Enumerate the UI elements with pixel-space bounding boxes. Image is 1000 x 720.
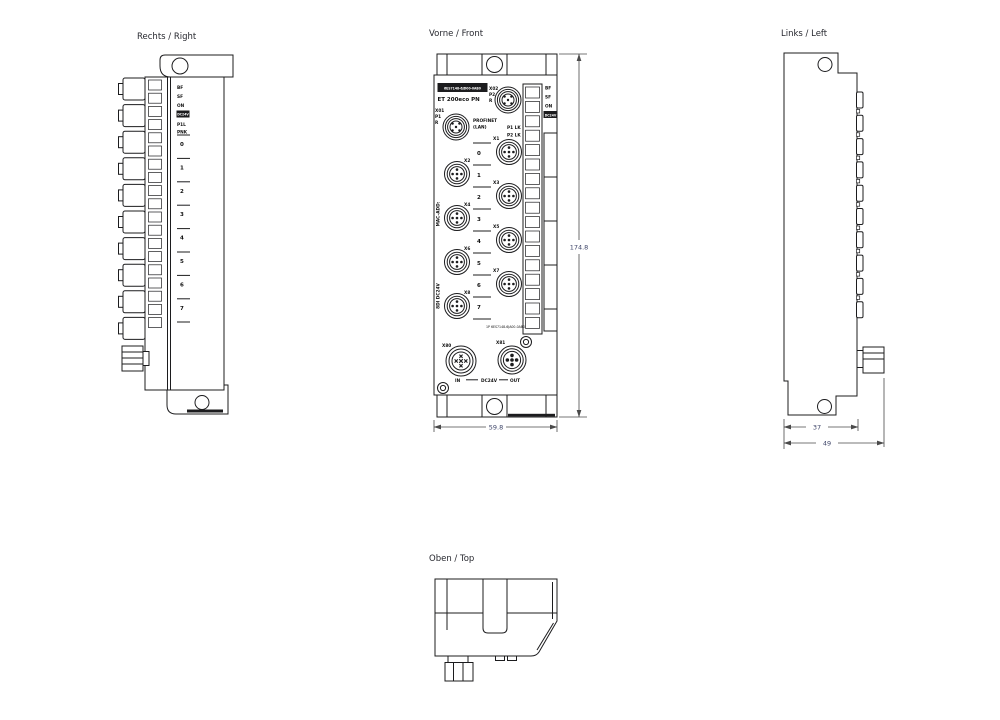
led-cell: [526, 116, 540, 127]
m12-socket-side: [119, 317, 146, 339]
mounting-tab: [508, 656, 517, 661]
led-cell: [526, 289, 540, 300]
led-cells: [526, 87, 540, 328]
led-cell: [149, 318, 162, 328]
led-cell: [149, 265, 162, 275]
bottom-mounting-flange: [437, 395, 557, 417]
top-mounting-flange: [437, 54, 557, 75]
led-cell: [149, 80, 162, 90]
m12-socket-side: [857, 162, 864, 183]
order-number: 1P 6ES7148-6JA00-0AB0: [486, 325, 525, 329]
port-label: X8: [464, 290, 470, 296]
view-front: Vorne / Front 6ES7148-6JD00-0AB0 ET 200e…: [429, 29, 588, 432]
m12-socket-side: [119, 184, 146, 206]
m12-socket-side: [119, 211, 146, 233]
m12-socket-side: [119, 131, 146, 153]
view-title-left: Links / Left: [781, 29, 828, 39]
led-cell: [526, 145, 540, 156]
led-cell: [149, 146, 162, 156]
port-label: X02: [489, 86, 498, 92]
channel-number: 4: [180, 236, 184, 242]
m12-socket: [497, 228, 522, 253]
port-label: X3: [493, 180, 499, 186]
drawing-canvas: Rechts / Right BF SF ON DC24V P1L PNK 01…: [0, 0, 1000, 720]
link-label: P1L: [177, 122, 186, 128]
technical-drawing-page: Rechts / Right BF SF ON DC24V P1L PNK 01…: [0, 0, 1000, 720]
led-cell: [526, 303, 540, 314]
mounting-hole: [195, 396, 209, 410]
m12-socket-side: [857, 185, 864, 206]
led-cell: [149, 252, 162, 262]
product-name: ET 200eco PN: [438, 97, 481, 103]
channel-number: 3: [180, 212, 184, 218]
m12-socket-side: [119, 105, 146, 127]
m12-socket-side: [119, 78, 146, 100]
m12-socket: [443, 114, 469, 140]
channel-number: 0: [477, 151, 481, 157]
mounting-hole: [172, 58, 188, 74]
m12-socket: [445, 250, 470, 275]
port-label: X01: [435, 108, 444, 114]
channel-number: 2: [180, 189, 184, 195]
profinet-label: PROFINET: [473, 118, 497, 124]
mounting-hole: [487, 399, 503, 415]
dimension-depth-inner-value: 37: [813, 424, 821, 432]
port-label: P2: [489, 92, 495, 98]
led-cell: [526, 231, 540, 242]
led-cell: [526, 130, 540, 141]
led-cell: [526, 188, 540, 199]
led-label: ON: [545, 104, 553, 110]
top-mounting-flange: [160, 55, 233, 77]
port-label: X2: [464, 158, 470, 164]
power-socket-female: [498, 346, 526, 374]
m12-socket-side: [857, 115, 864, 136]
mounting-hole: [487, 57, 503, 73]
led-label: DC24V: [177, 113, 189, 117]
port-label: X5: [493, 224, 499, 230]
led-cell: [526, 217, 540, 228]
m12-socket: [497, 272, 522, 297]
view-top: Oben / Top: [429, 554, 557, 681]
m12-socket-side: [119, 264, 146, 286]
side-connector-blocks: [119, 78, 146, 339]
led-cell: [149, 93, 162, 103]
power-connector-top: [445, 656, 473, 681]
m12-socket-side: [119, 291, 146, 313]
channel-number: 5: [477, 261, 481, 267]
m12-socket: [445, 162, 470, 187]
led-label: BF: [545, 86, 551, 92]
led-label: SF: [545, 95, 551, 101]
led-cell: [149, 106, 162, 116]
led-cell: [149, 133, 162, 143]
side-connector-bumps: [857, 92, 864, 318]
power-in-label: IN: [455, 378, 461, 384]
dimension-height: 174.8: [559, 54, 588, 417]
view-title-right: Rechts / Right: [137, 32, 197, 42]
view-left: Links / Left 37 49: [781, 29, 884, 449]
port-label: X4: [464, 202, 470, 208]
device-body-side: [784, 53, 857, 415]
led-label: BF: [177, 85, 183, 91]
channel-number: 3: [477, 217, 481, 223]
led-cell: [149, 172, 162, 182]
led-cell: [149, 238, 162, 248]
m12-socket-side: [119, 158, 146, 180]
port-label: X6: [464, 246, 470, 252]
led-cell: [149, 225, 162, 235]
mounting-hole: [818, 58, 832, 72]
led-label: DC24V: [545, 113, 557, 117]
m12-socket-side: [857, 232, 864, 253]
led-cell: [526, 245, 540, 256]
port-label: X81: [496, 340, 505, 346]
led-cell: [149, 291, 162, 301]
m12-socket-side: [857, 139, 864, 160]
view-right: Rechts / Right BF SF ON DC24V P1L PNK 01…: [119, 32, 234, 414]
view-title-front: Vorne / Front: [429, 29, 484, 39]
led-cell: [149, 120, 162, 130]
led-cell: [149, 304, 162, 314]
label-plates: [544, 133, 557, 331]
channel-number: 7: [477, 305, 481, 311]
view-title-top: Oben / Top: [429, 554, 474, 564]
led-cell: [149, 278, 162, 288]
channel-number: 0: [180, 142, 184, 148]
m12-socket: [445, 294, 470, 319]
screw-hole: [521, 337, 532, 348]
m12-socket-side: [857, 92, 864, 113]
led-cell: [149, 199, 162, 209]
led-cell: [526, 317, 540, 328]
port-label: P1: [435, 114, 441, 120]
io-type-label: 8DI DC24V: [436, 282, 442, 308]
led-cell: [149, 212, 162, 222]
device-body-top: [435, 579, 557, 656]
channel-number: 1: [477, 173, 481, 179]
led-cell: [526, 87, 540, 98]
led-cell: [149, 159, 162, 169]
port-label: X7: [493, 268, 499, 274]
channel-number: 7: [180, 306, 184, 312]
m12-socket-side: [857, 302, 864, 318]
dimension-width-value: 59.8: [489, 424, 503, 432]
led-cell: [526, 202, 540, 213]
m12-socket-side: [857, 209, 864, 230]
dimension-depth-inner: 37: [784, 419, 858, 449]
led-label: ON: [177, 103, 185, 109]
port-label: X1: [493, 136, 499, 142]
m12-socket: [495, 87, 521, 113]
dimension-height-value: 174.8: [570, 244, 589, 252]
led-label: SF: [177, 94, 183, 100]
port-label: X80: [442, 343, 451, 349]
port2-link-label: P2 LK: [507, 133, 521, 139]
power-bus-label: DC24V: [481, 378, 498, 384]
mounting-hole: [818, 400, 832, 414]
power-out-label: OUT: [510, 378, 520, 384]
terminal-led-strip: [523, 84, 542, 334]
mounting-tab: [496, 656, 505, 661]
screw-hole: [438, 383, 449, 394]
m12-socket-side: [119, 238, 146, 260]
led-cell: [526, 159, 540, 170]
m12-socket: [497, 184, 522, 209]
channel-number: 1: [180, 165, 184, 171]
led-cell: [526, 173, 540, 184]
power-connector-side: [857, 347, 884, 373]
led-cell: [526, 274, 540, 285]
profinet-sub-label: (LAN): [473, 125, 487, 131]
m12-socket-side: [857, 278, 864, 299]
channel-number: 5: [180, 259, 184, 265]
port1-link-label: P1 LK: [507, 125, 521, 131]
mac-address-label: MAC-ADD:: [436, 201, 442, 226]
led-cell: [526, 101, 540, 112]
m12-socket-side: [857, 255, 864, 276]
power-socket-male: [446, 346, 476, 376]
dimension-depth-outer-value: 49: [823, 440, 831, 448]
channel-number: 6: [180, 282, 184, 288]
article-number: 6ES7148-6JD00-0AB0: [444, 86, 481, 90]
led-cell: [526, 260, 540, 271]
channel-number: 6: [477, 283, 481, 289]
channel-number: 2: [477, 195, 481, 201]
channel-number: 4: [477, 239, 481, 245]
dimension-width: 59.8: [434, 420, 557, 432]
m12-socket: [445, 206, 470, 231]
m12-socket: [497, 140, 522, 165]
led-cell: [149, 186, 162, 196]
